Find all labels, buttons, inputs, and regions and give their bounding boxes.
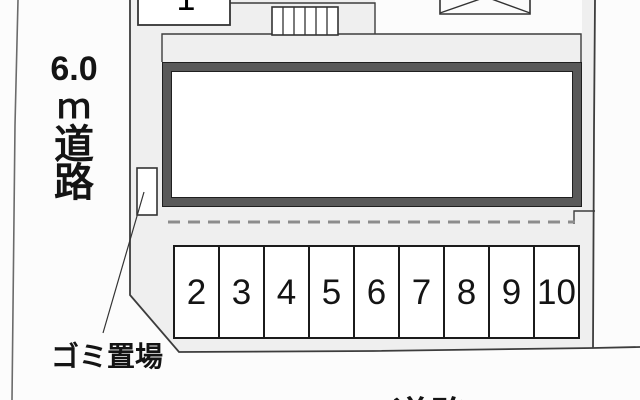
building-footprint — [162, 62, 582, 207]
roof-gable-symbol — [440, 0, 530, 14]
space-5: 5 — [308, 245, 355, 339]
parking-row: 2345678910 — [173, 245, 580, 339]
space-label: 3 — [232, 275, 251, 310]
space-7: 7 — [398, 245, 445, 339]
road-char-label: 路 — [54, 161, 94, 205]
road-char-label: ｍ — [57, 88, 91, 126]
space-label: 8 — [457, 275, 476, 310]
road-char-6.0: 6.0 — [50, 50, 97, 88]
space-10: 10 — [533, 245, 580, 339]
space-label: 9 — [502, 275, 521, 310]
space-9: 9 — [488, 245, 535, 339]
space-label: 4 — [277, 275, 296, 310]
space-4: 4 — [263, 245, 310, 339]
road-label-bottom: 6.0ｍ道路 — [300, 385, 468, 400]
road-char-ｍ: ｍ — [57, 88, 91, 126]
space-6: 6 — [353, 245, 400, 339]
staircase-symbol — [272, 7, 338, 35]
road-char-道: 道 — [54, 126, 94, 164]
space-label: 5 — [322, 275, 341, 310]
space-label: 7 — [412, 275, 431, 310]
space-8: 8 — [443, 245, 490, 339]
garbage-area-label: ゴミ置場 — [51, 335, 163, 375]
garbage-box — [137, 168, 157, 215]
space-label: 6 — [367, 275, 386, 310]
road-char-label: 6.0 — [50, 50, 97, 88]
road-char-路: 路 — [54, 164, 94, 202]
parking-space-1-number: 1 — [170, 0, 202, 19]
road-far-edge-line — [12, 0, 18, 400]
building-interior — [171, 71, 573, 198]
site-plan-canvas: 1 2345678910 6.0ｍ道路 6.0ｍ道路 ゴミ置場 — [0, 0, 640, 400]
road-label-left: 6.0ｍ道路 — [40, 50, 108, 202]
space-label: 10 — [537, 275, 576, 310]
space-label: 2 — [187, 275, 206, 310]
space-2: 2 — [173, 245, 220, 339]
space-3: 3 — [218, 245, 265, 339]
